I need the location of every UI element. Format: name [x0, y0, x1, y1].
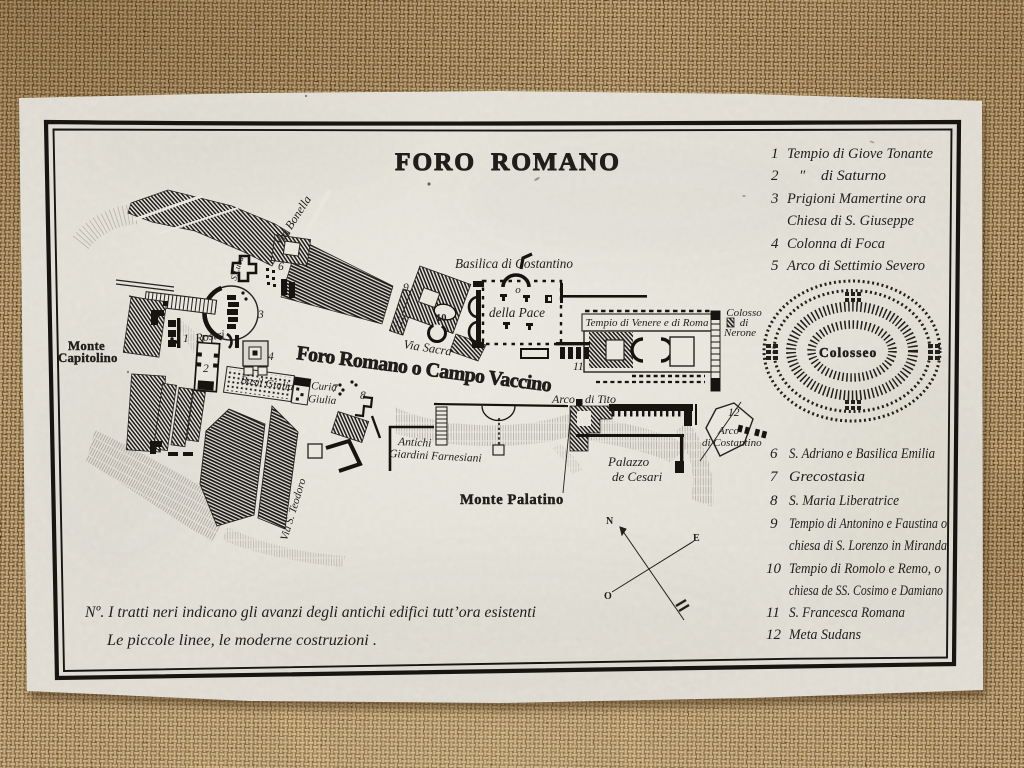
svg-text:di Costantino: di Costantino	[702, 437, 762, 449]
svg-text:Basilica di Costantino: Basilica di Costantino	[455, 256, 573, 271]
svg-text:12: 12	[766, 627, 782, 643]
svg-text:Colonna di Foca: Colonna di Foca	[787, 236, 885, 252]
svg-text:4: 4	[268, 351, 274, 363]
svg-text:Arco: Arco	[717, 425, 739, 437]
svg-text:S. Francesca Romana: S. Francesca Romana	[789, 605, 905, 621]
svg-text:11: 11	[766, 605, 780, 621]
svg-text:chiesa de SS. Cosimo e Damiano: chiesa de SS. Cosimo e Damiano	[789, 583, 943, 599]
svg-text:S. Adriano e Basilica Emilia: S. Adriano e Basilica Emilia	[789, 446, 935, 462]
svg-text:Le piccole linee, le moderne c: Le piccole linee, le moderne costruzioni…	[106, 632, 377, 649]
svg-text:chiesa di S. Lorenzo in Mirand: chiesa di S. Lorenzo in Miranda	[789, 538, 947, 554]
svg-text:6: 6	[770, 446, 778, 462]
svg-text:Tempio di Venere e di Roma: Tempio di Venere e di Roma	[586, 317, 709, 329]
svg-text:10: 10	[436, 313, 447, 324]
svg-text:1: 1	[183, 333, 189, 345]
svg-text:9: 9	[770, 516, 778, 532]
svg-text:E: E	[693, 533, 700, 544]
svg-text:Capitolino: Capitolino	[58, 351, 118, 365]
svg-text:2: 2	[771, 168, 779, 184]
svg-text:6: 6	[278, 261, 284, 273]
svg-text:Prigioni Mamertine ora: Prigioni Mamertine ora	[786, 191, 926, 207]
svg-text:o: o	[515, 284, 521, 296]
svg-text:Tempio di Antonino e Faustina: Tempio di Antonino e Faustina o	[789, 516, 947, 532]
svg-text:4: 4	[771, 236, 779, 252]
svg-text:O: O	[604, 591, 612, 602]
svg-text:9: 9	[403, 282, 409, 294]
svg-text:Palazzo: Palazzo	[607, 454, 650, 469]
svg-text:Tempio di Giove Tonante: Tempio di Giove Tonante	[787, 146, 933, 162]
svg-text:Nº. I tratti neri indicano gli: Nº. I tratti neri indicano gli avanzi de…	[84, 604, 536, 621]
svg-text:Grecostasia: Grecostasia	[789, 469, 865, 485]
svg-text:N: N	[606, 516, 614, 527]
svg-text:Antichi: Antichi	[397, 436, 432, 450]
svg-text:FORO ROMANO: FORO ROMANO	[395, 147, 621, 176]
svg-text:11: 11	[573, 361, 584, 373]
svg-text:12: 12	[728, 407, 740, 419]
svg-text:1: 1	[771, 146, 779, 162]
svg-text:de Cesari: de Cesari	[612, 469, 663, 484]
svg-text:″: ″	[799, 168, 806, 184]
svg-text:10: 10	[766, 561, 782, 577]
svg-text:3: 3	[770, 191, 779, 207]
svg-text:Chiesa di S. Giuseppe: Chiesa di S. Giuseppe	[787, 213, 914, 229]
svg-text:8: 8	[770, 493, 778, 509]
svg-text:della Pace: della Pace	[489, 305, 545, 320]
svg-text:Nerone: Nerone	[723, 327, 756, 339]
svg-text:2: 2	[203, 363, 209, 375]
svg-text:Giulia: Giulia	[308, 393, 337, 407]
svg-text:5: 5	[771, 258, 779, 274]
svg-text:di Tito: di Tito	[585, 392, 616, 406]
svg-text:Monte Palatino: Monte Palatino	[460, 492, 564, 508]
svg-text:Arco: Arco	[551, 392, 575, 406]
svg-text:di Saturno: di Saturno	[821, 168, 887, 184]
svg-text:Colosseo: Colosseo	[819, 345, 877, 360]
svg-text:Meta Sudans: Meta Sudans	[788, 627, 861, 643]
svg-text:S. Maria Liberatrice: S. Maria Liberatrice	[789, 493, 899, 509]
svg-text:Tempio di Romolo e Remo, o: Tempio di Romolo e Remo, o	[789, 561, 941, 577]
svg-text:8: 8	[360, 390, 366, 402]
svg-text:3: 3	[257, 309, 264, 321]
svg-text:Arco di Settimio Severo: Arco di Settimio Severo	[786, 258, 925, 274]
